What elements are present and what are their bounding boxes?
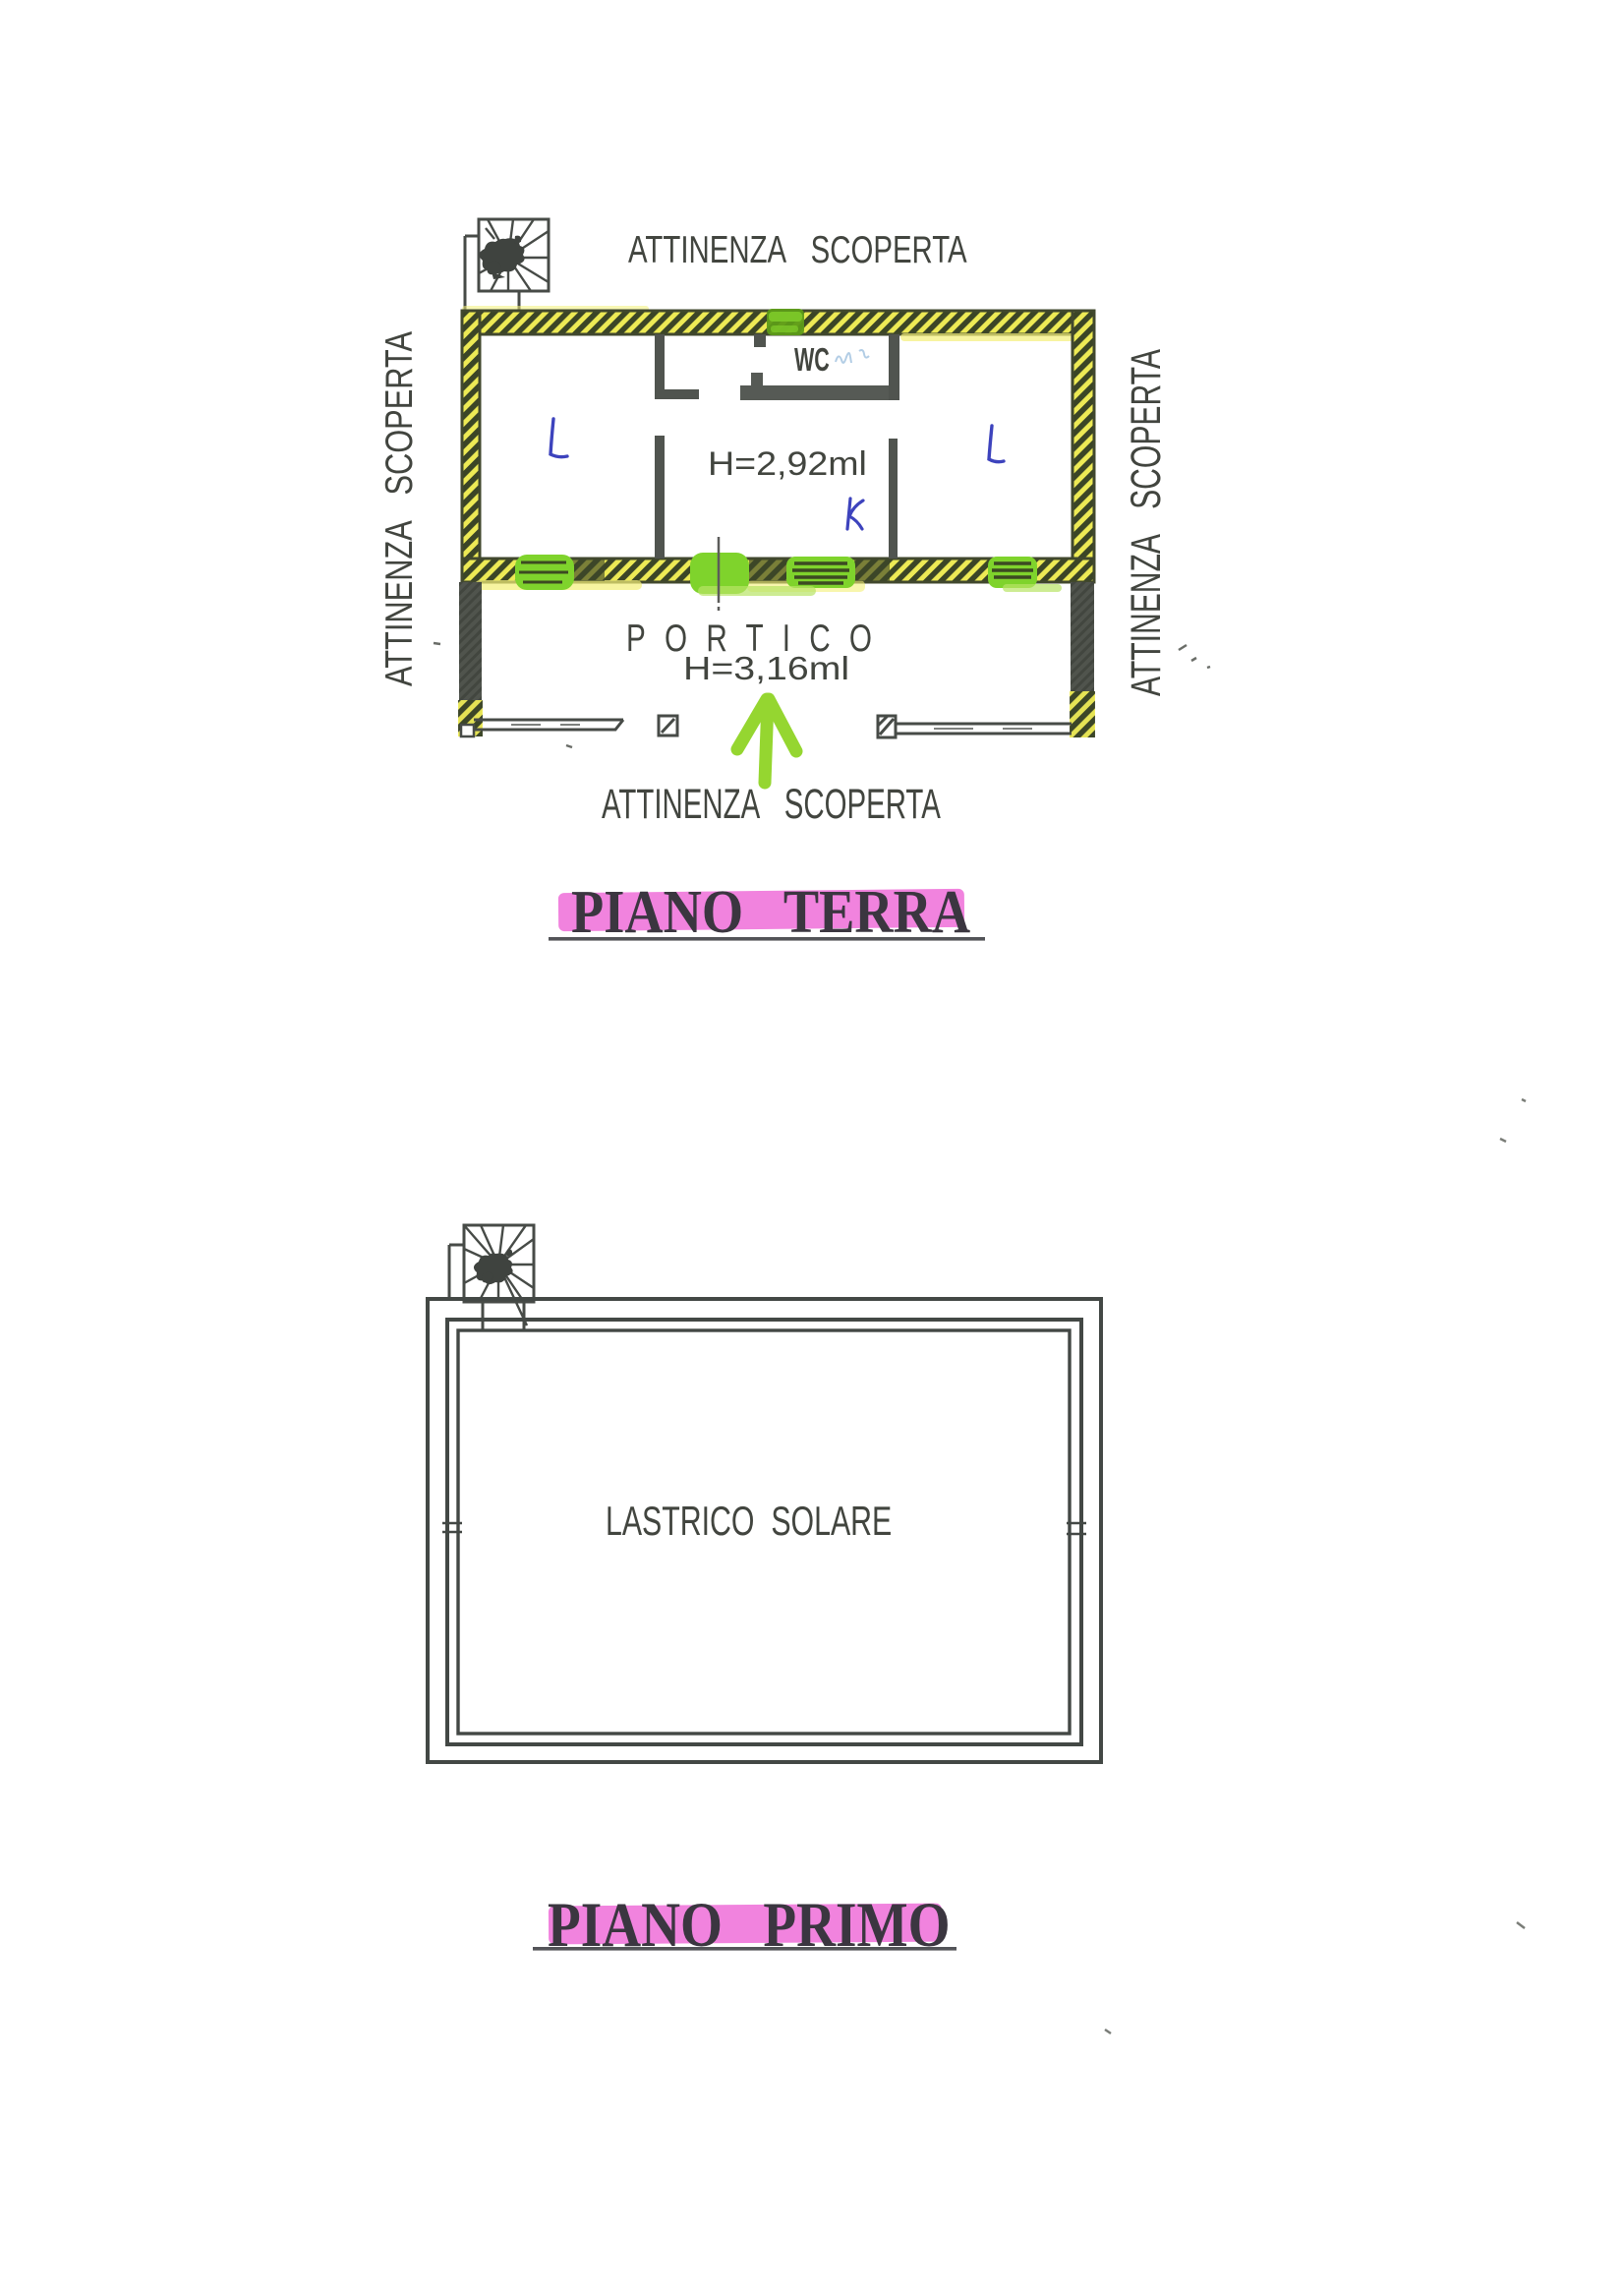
- svg-text:ATTINENZA SCOPERTA: ATTINENZA SCOPERTA: [628, 229, 967, 271]
- svg-text:LASTRICO SOLARE: LASTRICO SOLARE: [606, 1498, 892, 1544]
- svg-text:ATTINENZA SCOPERTA: ATTINENZA SCOPERTA: [1122, 349, 1170, 696]
- svg-text:WC: WC: [794, 341, 830, 378]
- svg-text:H=3,16ml: H=3,16ml: [683, 650, 849, 686]
- svg-text:PIANO TERRA: PIANO TERRA: [571, 877, 970, 945]
- svg-text:H=2,92ml: H=2,92ml: [708, 445, 867, 483]
- svg-text:ATTINENZA SCOPERTA: ATTINENZA SCOPERTA: [378, 330, 421, 686]
- svg-text:ATTINENZA SCOPERTA: ATTINENZA SCOPERTA: [602, 781, 941, 828]
